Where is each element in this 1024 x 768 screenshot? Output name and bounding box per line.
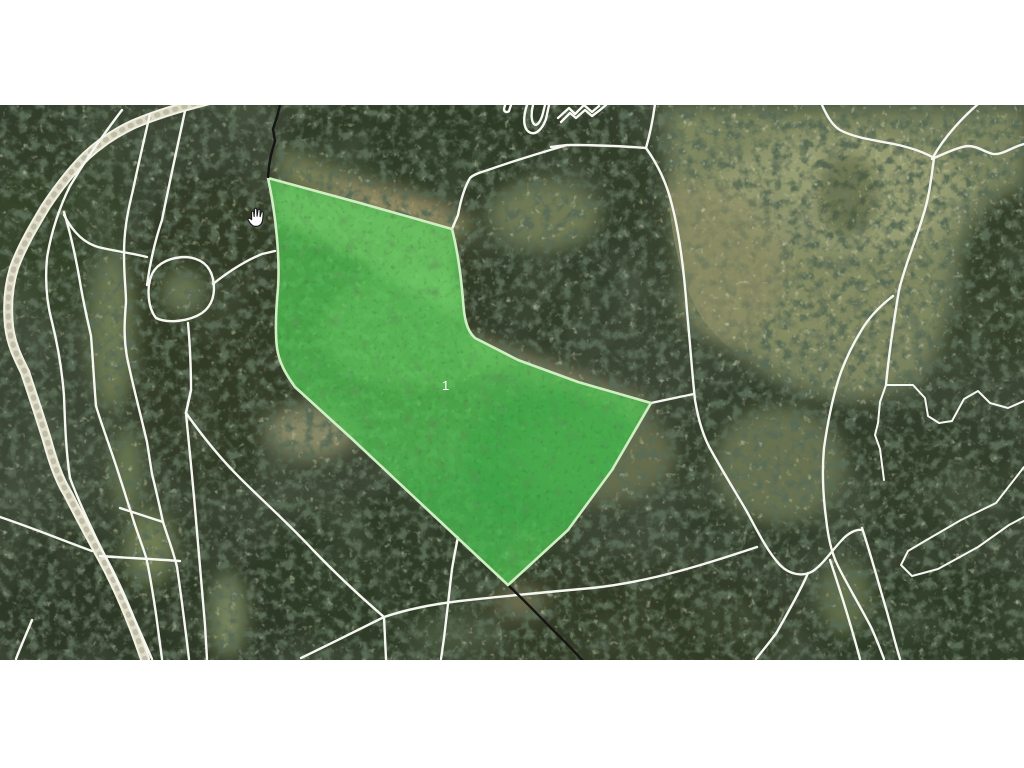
svg-text:1: 1 (442, 378, 449, 393)
